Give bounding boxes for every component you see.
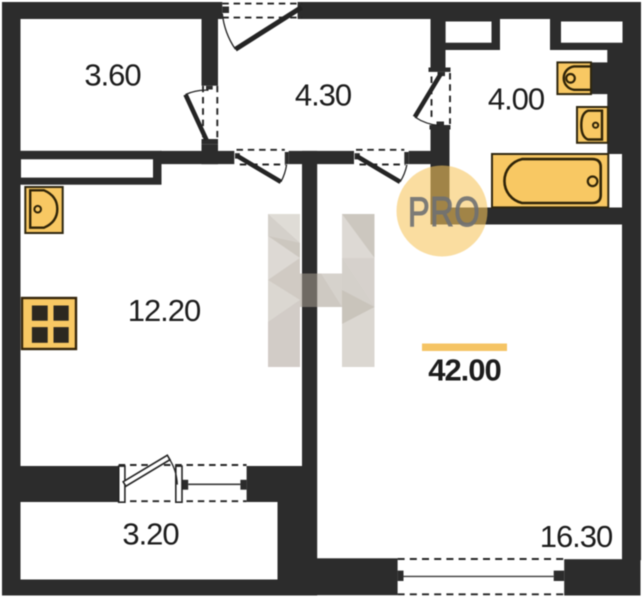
svg-text:4.00: 4.00 [488,82,545,117]
svg-text:PRO: PRO [408,188,480,235]
svg-text:42.00: 42.00 [428,353,501,388]
svg-text:3.20: 3.20 [122,517,179,552]
svg-text:12.20: 12.20 [128,293,201,328]
svg-text:4.30: 4.30 [295,78,352,113]
svg-text:3.60: 3.60 [84,58,141,93]
svg-text:16.30: 16.30 [540,519,613,554]
